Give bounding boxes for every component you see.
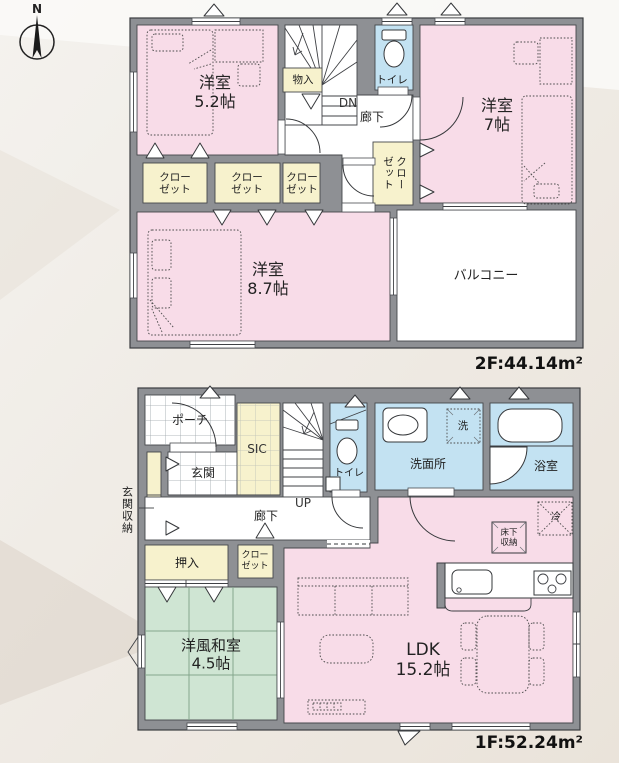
storage-monoire (283, 68, 322, 92)
sic-tiles (237, 403, 280, 495)
room-bedroom-8-7 (137, 212, 390, 341)
floorplan-page: N 洋室 5.2帖 物入 DN 廊下 トイレ 洋室 7帖 クロー ゼット クロー… (0, 0, 619, 763)
hallway-1f (145, 497, 370, 540)
closet-2 (215, 163, 280, 203)
closet-3 (283, 163, 320, 203)
closet-1 (143, 163, 207, 203)
balcony (397, 210, 576, 341)
room-bedroom-5-2 (137, 25, 278, 155)
room-tatami (145, 587, 277, 720)
porch-tiles (145, 395, 235, 445)
closet-vertical (373, 142, 413, 205)
kitchen-sink (452, 570, 492, 594)
floor2-plan (130, 3, 583, 348)
closet-1f (238, 545, 273, 578)
floor1-plan (128, 386, 580, 745)
room-bedroom-7 (420, 25, 576, 203)
floorplan-drawing (0, 0, 619, 763)
oshiire (145, 545, 228, 580)
toilet-icon-2f (382, 30, 406, 67)
